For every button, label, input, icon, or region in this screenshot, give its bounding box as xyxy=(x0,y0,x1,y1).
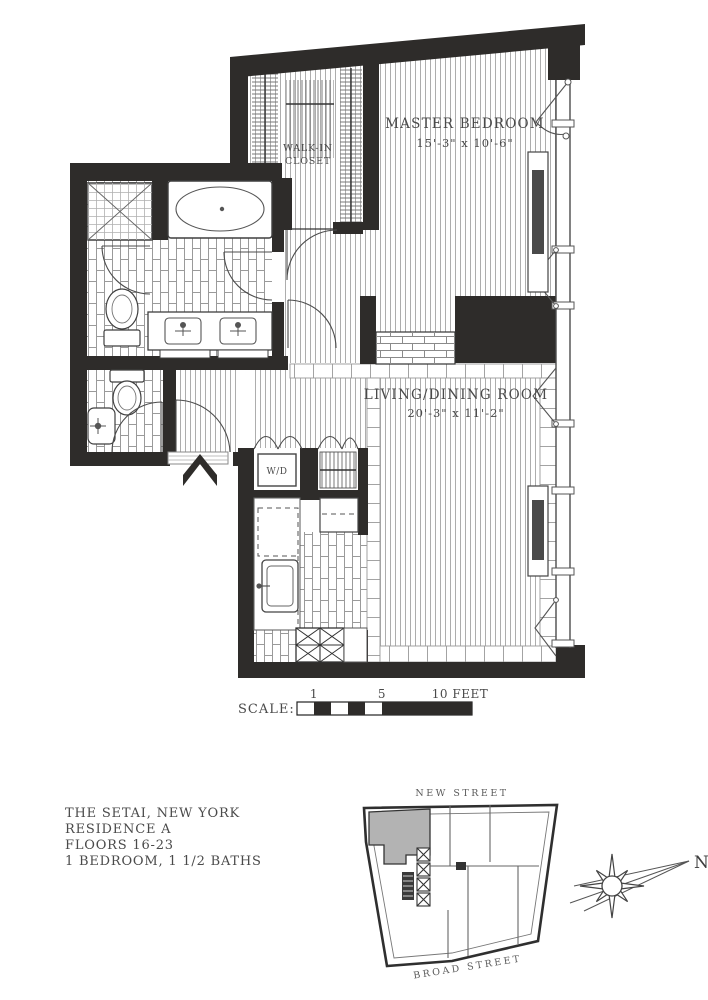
laundry-closet: W/D xyxy=(258,454,296,486)
title-line-2: RESIDENCE A xyxy=(65,822,171,837)
unit-entry xyxy=(168,452,228,486)
corridor-floor-lower xyxy=(284,296,360,363)
north-label: N xyxy=(694,853,708,873)
floor-plan-sheet: W/D xyxy=(0,0,708,1000)
scale-tick-1: 1 xyxy=(310,687,318,701)
sink-icon xyxy=(220,318,256,344)
west-wall xyxy=(70,163,87,466)
corridor-floor xyxy=(284,228,379,296)
title-line-4: 1 BEDROOM, 1 1/2 BATHS xyxy=(65,854,262,869)
scale-tick-5: 5 xyxy=(378,687,386,701)
stair-icon xyxy=(402,872,414,900)
scale-label: SCALE: xyxy=(238,702,295,717)
brick-feature-wall xyxy=(376,332,455,364)
key-plan: NEW STREET BROAD STREET xyxy=(364,788,557,982)
walk-in-closet-label-line2: CLOSET xyxy=(285,156,331,167)
title-line-3: FLOORS 16-23 xyxy=(65,838,174,853)
kitchen-sink-icon xyxy=(256,560,298,612)
toilet-icon xyxy=(104,289,140,346)
walk-in-closet-label-line1: WALK-IN xyxy=(283,143,333,154)
shower-icon xyxy=(88,183,152,240)
laundry-label: W/D xyxy=(267,467,288,477)
living-bedroom-divider-mass xyxy=(455,296,556,363)
pedestal-sink-icon xyxy=(88,408,115,444)
scale-bar: SCALE: 1 5 10 FEET xyxy=(238,687,488,717)
living-dining-dimensions: 20'-3" x 11'-2" xyxy=(407,406,504,420)
bathtub-icon xyxy=(168,181,272,238)
coat-closet xyxy=(320,452,356,488)
refrigerator xyxy=(320,498,358,532)
master-bedroom-label: MASTER BEDROOM xyxy=(385,116,545,132)
master-bedroom-dimensions: 15'-3" x 10'-6" xyxy=(416,136,513,150)
double-vanity xyxy=(148,312,272,358)
sink-icon xyxy=(165,318,201,344)
northeast-corner-wall xyxy=(548,40,580,80)
south-wall xyxy=(238,662,585,678)
title-block: THE SETAI, NEW YORK RESIDENCE A FLOORS 1… xyxy=(65,806,262,869)
cooktop-icon xyxy=(296,628,344,662)
gallery-floor xyxy=(254,370,367,448)
scale-tick-10: 10 FEET xyxy=(432,687,488,701)
compass-rose-icon: N xyxy=(570,853,708,918)
base-cabinet xyxy=(344,628,367,662)
floor-plan-drawing: W/D xyxy=(0,0,708,1000)
title-line-1: THE SETAI, NEW YORK xyxy=(65,806,240,821)
living-dining-label: LIVING/DINING ROOM xyxy=(364,387,548,403)
street-label-top: NEW STREET xyxy=(415,788,508,799)
